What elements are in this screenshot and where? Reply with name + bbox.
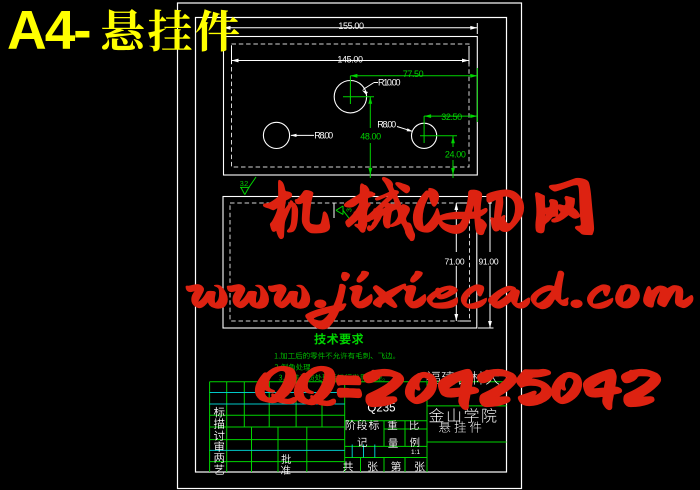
svg-text:3.2: 3.2 (240, 179, 248, 188)
svg-text:A4-: A4- (7, 0, 90, 61)
svg-text:48.00: 48.00 (360, 131, 381, 141)
svg-text:145.00: 145.00 (337, 54, 363, 64)
svg-text:R8.00: R8.00 (377, 120, 396, 130)
svg-text:1:1: 1:1 (411, 449, 420, 456)
svg-text:32.50: 32.50 (441, 112, 462, 122)
svg-text:R8.00: R8.00 (314, 131, 333, 141)
svg-text:71.00: 71.00 (445, 257, 465, 267)
svg-text:77.50: 77.50 (403, 69, 424, 79)
svg-text:155.00: 155.00 (338, 21, 364, 31)
svg-text:24.00: 24.00 (445, 150, 466, 160)
svg-text:91.00: 91.00 (479, 257, 499, 267)
svg-text:R10.00: R10.00 (378, 77, 401, 87)
